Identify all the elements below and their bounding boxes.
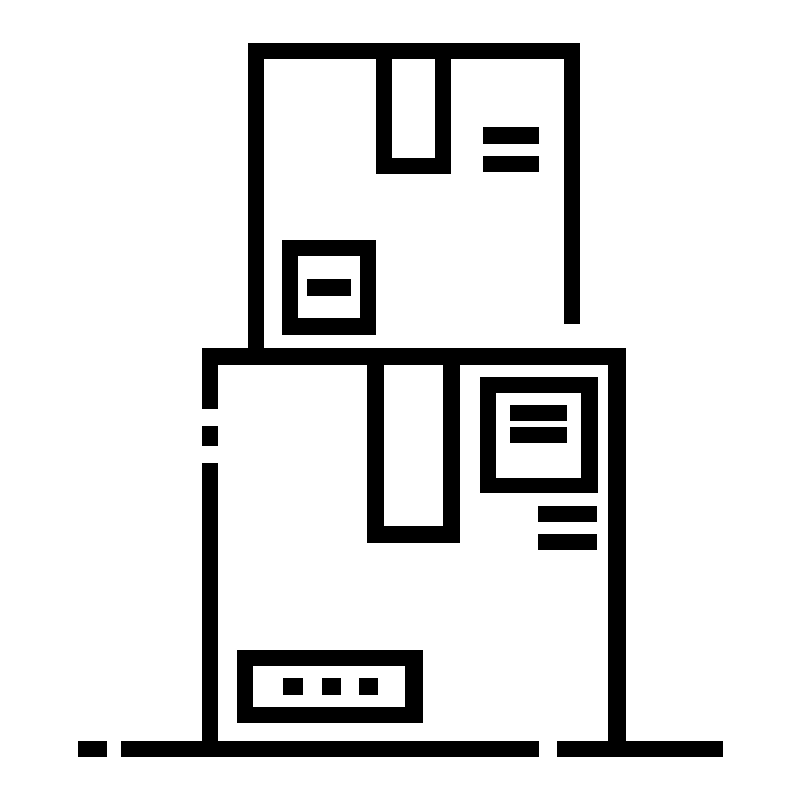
bottom-box-tape-hollow — [384, 365, 443, 526]
top-box-equals-bar-2 — [483, 156, 539, 172]
top-box-equals-bar-1 — [483, 127, 539, 144]
top-box-tape-hollow — [392, 59, 435, 158]
bottom-box-right-edge — [608, 348, 626, 757]
bottom-box-left-edge-dash — [202, 426, 218, 446]
ground-line-main-segment — [121, 741, 539, 757]
stacked-delivery-boxes-icon — [0, 0, 800, 800]
address-strip-square-2 — [322, 678, 341, 695]
ground-line-dash — [78, 741, 107, 757]
top-box-right-edge — [564, 43, 580, 324]
top-box-label-dash — [307, 279, 351, 296]
bottom-box-side-line-2 — [538, 534, 597, 550]
bottom-box-left-edge-segment-1 — [202, 348, 218, 409]
ground-line-right-segment — [557, 741, 723, 757]
top-box-left-edge — [248, 43, 264, 365]
bottom-box-label-bar-2 — [510, 427, 567, 443]
bottom-box-left-edge-segment-2 — [202, 463, 218, 757]
address-strip-square-1 — [283, 678, 303, 695]
icon-canvas — [0, 0, 800, 800]
address-strip-square-3 — [359, 678, 378, 695]
bottom-box-label-bar-1 — [510, 405, 567, 421]
bottom-box-side-line-1 — [538, 506, 597, 522]
